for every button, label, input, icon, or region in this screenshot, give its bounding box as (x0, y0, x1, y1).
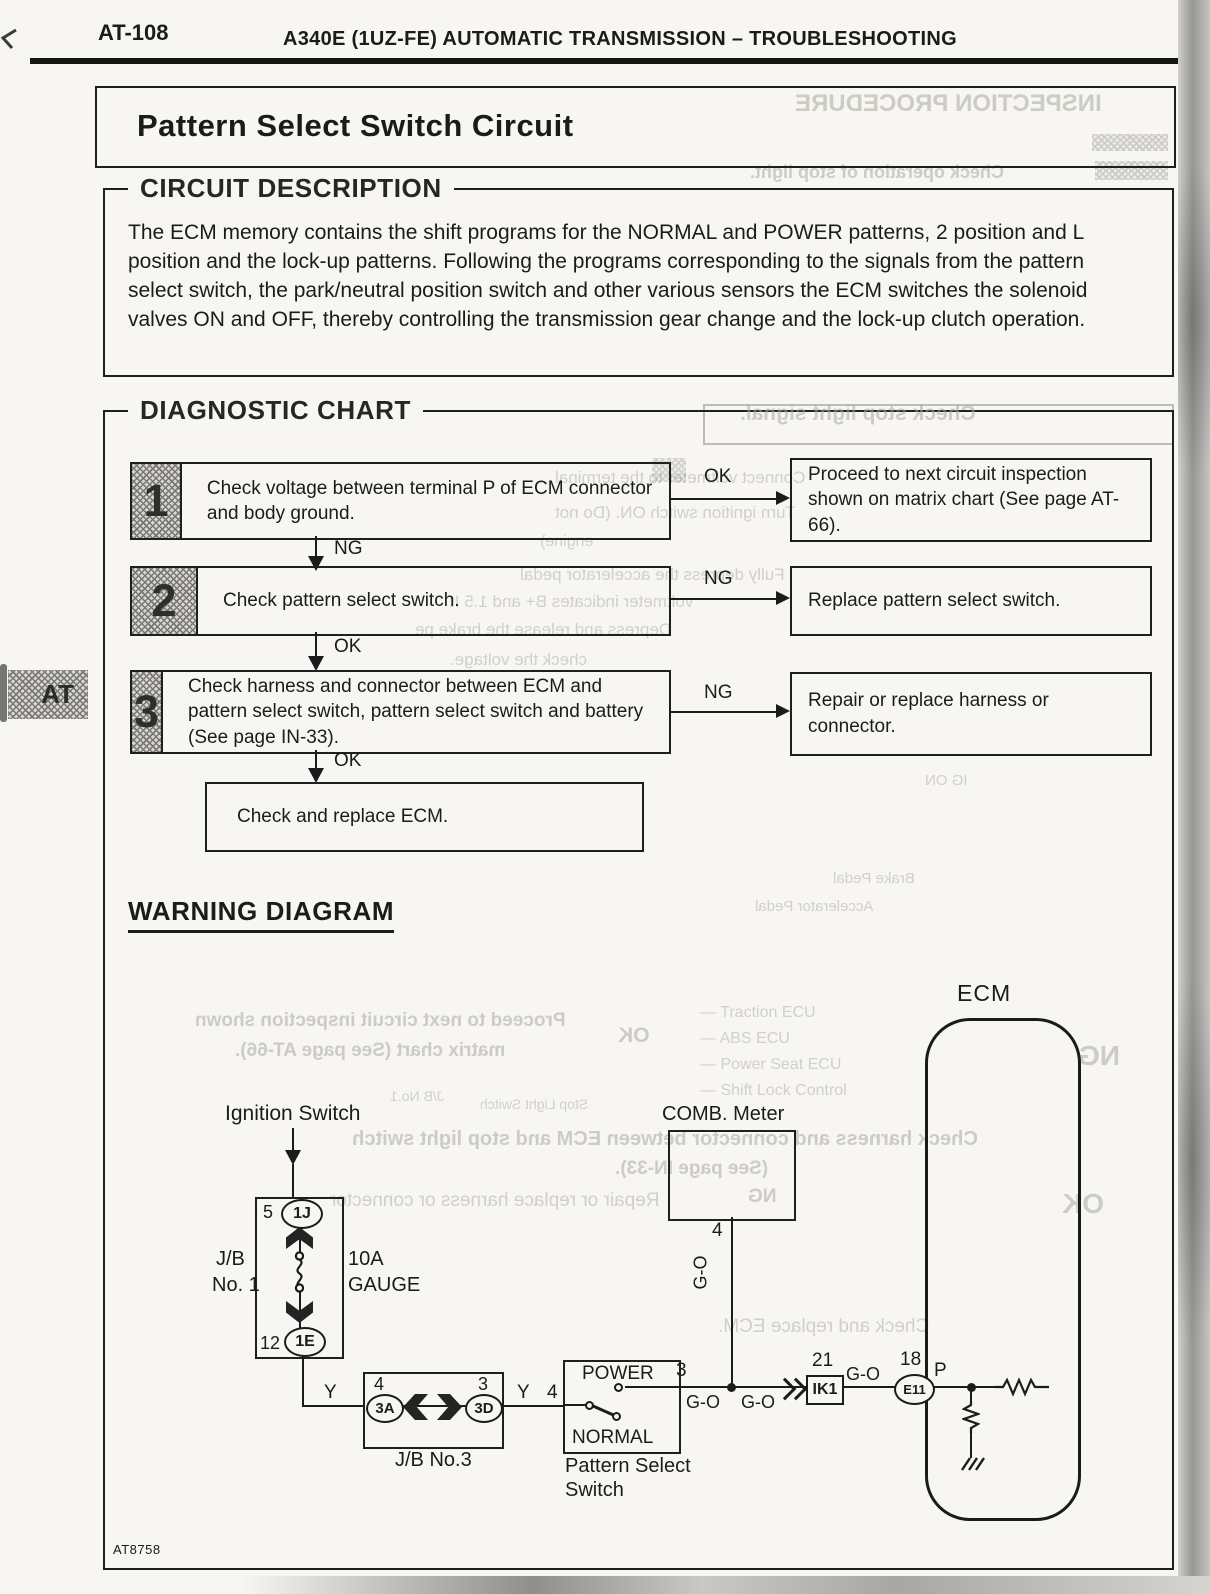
flowchart-result-2: Replace pattern select switch. (790, 566, 1152, 636)
flow-arrowhead (776, 591, 790, 605)
ghost-text: — ABS ECU (700, 1030, 790, 1048)
tab-edge-smudge (0, 664, 7, 722)
pin-number: 4 (374, 1374, 384, 1395)
scan-corner-mark (0, 26, 20, 60)
flow-line (669, 598, 776, 600)
flow-arrowhead (308, 656, 324, 671)
pin-number: 4 (712, 1220, 723, 1242)
section-tab-label: AT (41, 679, 74, 710)
wire-color-g-o: G-O (741, 1392, 775, 1413)
ignition-switch-label: Ignition Switch (225, 1102, 360, 1126)
flow-arrowhead (776, 704, 790, 718)
switch-position-normal: NORMAL (572, 1427, 653, 1449)
result-text: Replace pattern select switch. (792, 584, 1070, 618)
branch-label-ng: NG (704, 568, 733, 590)
connector-3d: 3D (465, 1394, 503, 1423)
result-text: Proceed to next circuit inspection shown… (792, 458, 1150, 543)
result-text: Repair or replace harness or connector. (792, 684, 1150, 743)
wire-color-g-o-vertical: G-O (691, 1256, 712, 1290)
scan-edge-band-bottom (0, 1576, 1210, 1594)
ghost-text: Proceed to next circuit inspection shown (195, 1010, 566, 1032)
flow-arrowhead (308, 768, 324, 783)
ghost-text: Brake Pedal (833, 870, 915, 887)
jb1-label: No. 1 (212, 1274, 260, 1297)
wire-color-y: Y (324, 1382, 337, 1404)
ghost-text: — Shift Lock Control (700, 1082, 847, 1100)
header-rule (30, 58, 1178, 64)
connector-1j: 1J (281, 1199, 323, 1229)
ghost-text: matrix chart (See page AT-66). (235, 1040, 505, 1062)
branch-label-ng: NG (704, 682, 733, 704)
connector-e11: E11 (894, 1374, 935, 1405)
wire-junction-dot (727, 1383, 736, 1392)
pin-number: 21 (812, 1350, 833, 1372)
ghost-text: — Traction ECU (700, 1004, 816, 1022)
flowchart-final: Check and replace ECM. (205, 782, 644, 852)
circuit-description-heading: CIRCUIT DESCRIPTION (128, 171, 454, 205)
ghost-text: NG (1078, 1040, 1120, 1072)
running-header: A340E (1UZ-FE) AUTOMATIC TRANSMISSION – … (220, 28, 1020, 51)
ghost-text: J/B No.1 (390, 1088, 444, 1104)
pin-number: 3 (676, 1360, 687, 1382)
circuit-description-body: The ECM memory contains the shift progra… (128, 218, 1144, 334)
page-number: AT-108 (98, 20, 169, 46)
wire (292, 1128, 294, 1152)
flowchart-step-3: 3 Check harness and connector between EC… (130, 670, 671, 754)
switch-contact-power (614, 1383, 623, 1392)
jb3-label: J/B No.3 (395, 1449, 472, 1472)
resistor-horizontal (995, 1377, 1049, 1397)
step-number: 3 (132, 672, 163, 752)
flow-line (669, 498, 776, 500)
wire-pin-4: 4 (547, 1382, 558, 1404)
connector-3a: 3A (366, 1394, 404, 1423)
wire (292, 1164, 294, 1198)
scan-edge-band-right (1178, 0, 1210, 1594)
figure-code: AT8758 (113, 1542, 161, 1557)
ghost-text: — Power Seat ECU (700, 1056, 841, 1074)
flowchart-result-3: Repair or replace harness or connector. (790, 672, 1152, 756)
flow-line (315, 536, 317, 558)
wire-color-g-o: G-O (686, 1392, 720, 1413)
title-box: Pattern Select Switch Circuit (95, 86, 1176, 168)
ghost-text: IG ON (925, 772, 968, 789)
flow-line (315, 632, 317, 658)
pin-number: 12 (260, 1333, 280, 1354)
ghost-text: OK (618, 1024, 650, 1048)
connector-1e: 1E (284, 1327, 326, 1357)
ghost-text: Check and replace ECM. (718, 1316, 929, 1338)
ground-icon (957, 1455, 987, 1473)
flow-line (315, 750, 317, 770)
pin-number: 5 (263, 1202, 273, 1223)
switch-name: Switch (565, 1479, 624, 1502)
ecm-label: ECM (957, 980, 1011, 1007)
wire (563, 1404, 587, 1406)
manual-page: INSPECTION PROCEDURE Check operation of … (0, 0, 1210, 1594)
switch-contact-normal (612, 1412, 621, 1421)
step-number: 2 (132, 568, 198, 634)
ghost-text: Stop Light Switch (480, 1096, 588, 1112)
switch-position-power: POWER (582, 1363, 654, 1385)
wire (970, 1431, 972, 1458)
ecm-box (925, 1018, 1081, 1521)
jb1-label: J/B (216, 1248, 245, 1271)
flow-line (669, 711, 776, 713)
step-number: 1 (132, 464, 182, 538)
page-title: Pattern Select Switch Circuit (97, 88, 1174, 164)
comb-meter-box (668, 1130, 796, 1221)
wire-color-g-o: G-O (846, 1364, 880, 1385)
connector-ik1: IK1 (806, 1375, 844, 1405)
step-text: Check voltage between terminal P of ECM … (182, 472, 669, 531)
resistor-vertical (962, 1401, 980, 1433)
ghost-text: Repair or replace harness or connector (330, 1190, 660, 1212)
step-text: Check pattern select switch. (198, 584, 474, 617)
step-text: Check harness and connector between ECM … (163, 670, 669, 754)
section-tab-at: AT (8, 670, 88, 719)
comb-meter-label: COMB. Meter (662, 1103, 784, 1126)
branch-label-ok: OK (334, 750, 361, 772)
ghost-text: Check stop light signal. (740, 402, 976, 426)
wire-junction-dot (967, 1383, 976, 1392)
wire (731, 1217, 733, 1387)
fuse-rating-label: 10A (348, 1248, 384, 1271)
flow-arrowhead (776, 491, 790, 505)
wire (499, 1405, 563, 1407)
pin-number: 18 (900, 1349, 921, 1371)
final-text: Check and replace ECM. (207, 800, 458, 834)
fuse-icon (286, 1250, 313, 1294)
flowchart-result-1: Proceed to next circuit inspection shown… (790, 458, 1152, 542)
switch-name: Pattern Select (565, 1455, 691, 1478)
ghost-text: check the voltage. (450, 650, 587, 670)
wire-arrowhead (285, 1150, 301, 1165)
flowchart-step-2: 2 Check pattern select switch. (130, 566, 671, 636)
branch-label-ok: OK (704, 466, 731, 488)
wiring-diagram-heading: WARNING DIAGRAM (128, 896, 394, 933)
wire (302, 1353, 304, 1407)
branch-label-ok: OK (334, 636, 361, 658)
wire (927, 1386, 997, 1388)
branch-label-ng: NG (334, 538, 363, 560)
fuse-name-label: GAUGE (348, 1274, 420, 1297)
flowchart-step-1: 1 Check voltage between terminal P of EC… (130, 462, 671, 540)
wire (302, 1405, 363, 1407)
wire-color-y: Y (517, 1382, 530, 1404)
pin-number: 3 (478, 1374, 488, 1395)
ecm-terminal-p: P (934, 1360, 947, 1382)
diagnostic-chart-heading: DIAGNOSTIC CHART (128, 393, 423, 427)
ghost-text: Accelerator Pedal (755, 898, 873, 915)
